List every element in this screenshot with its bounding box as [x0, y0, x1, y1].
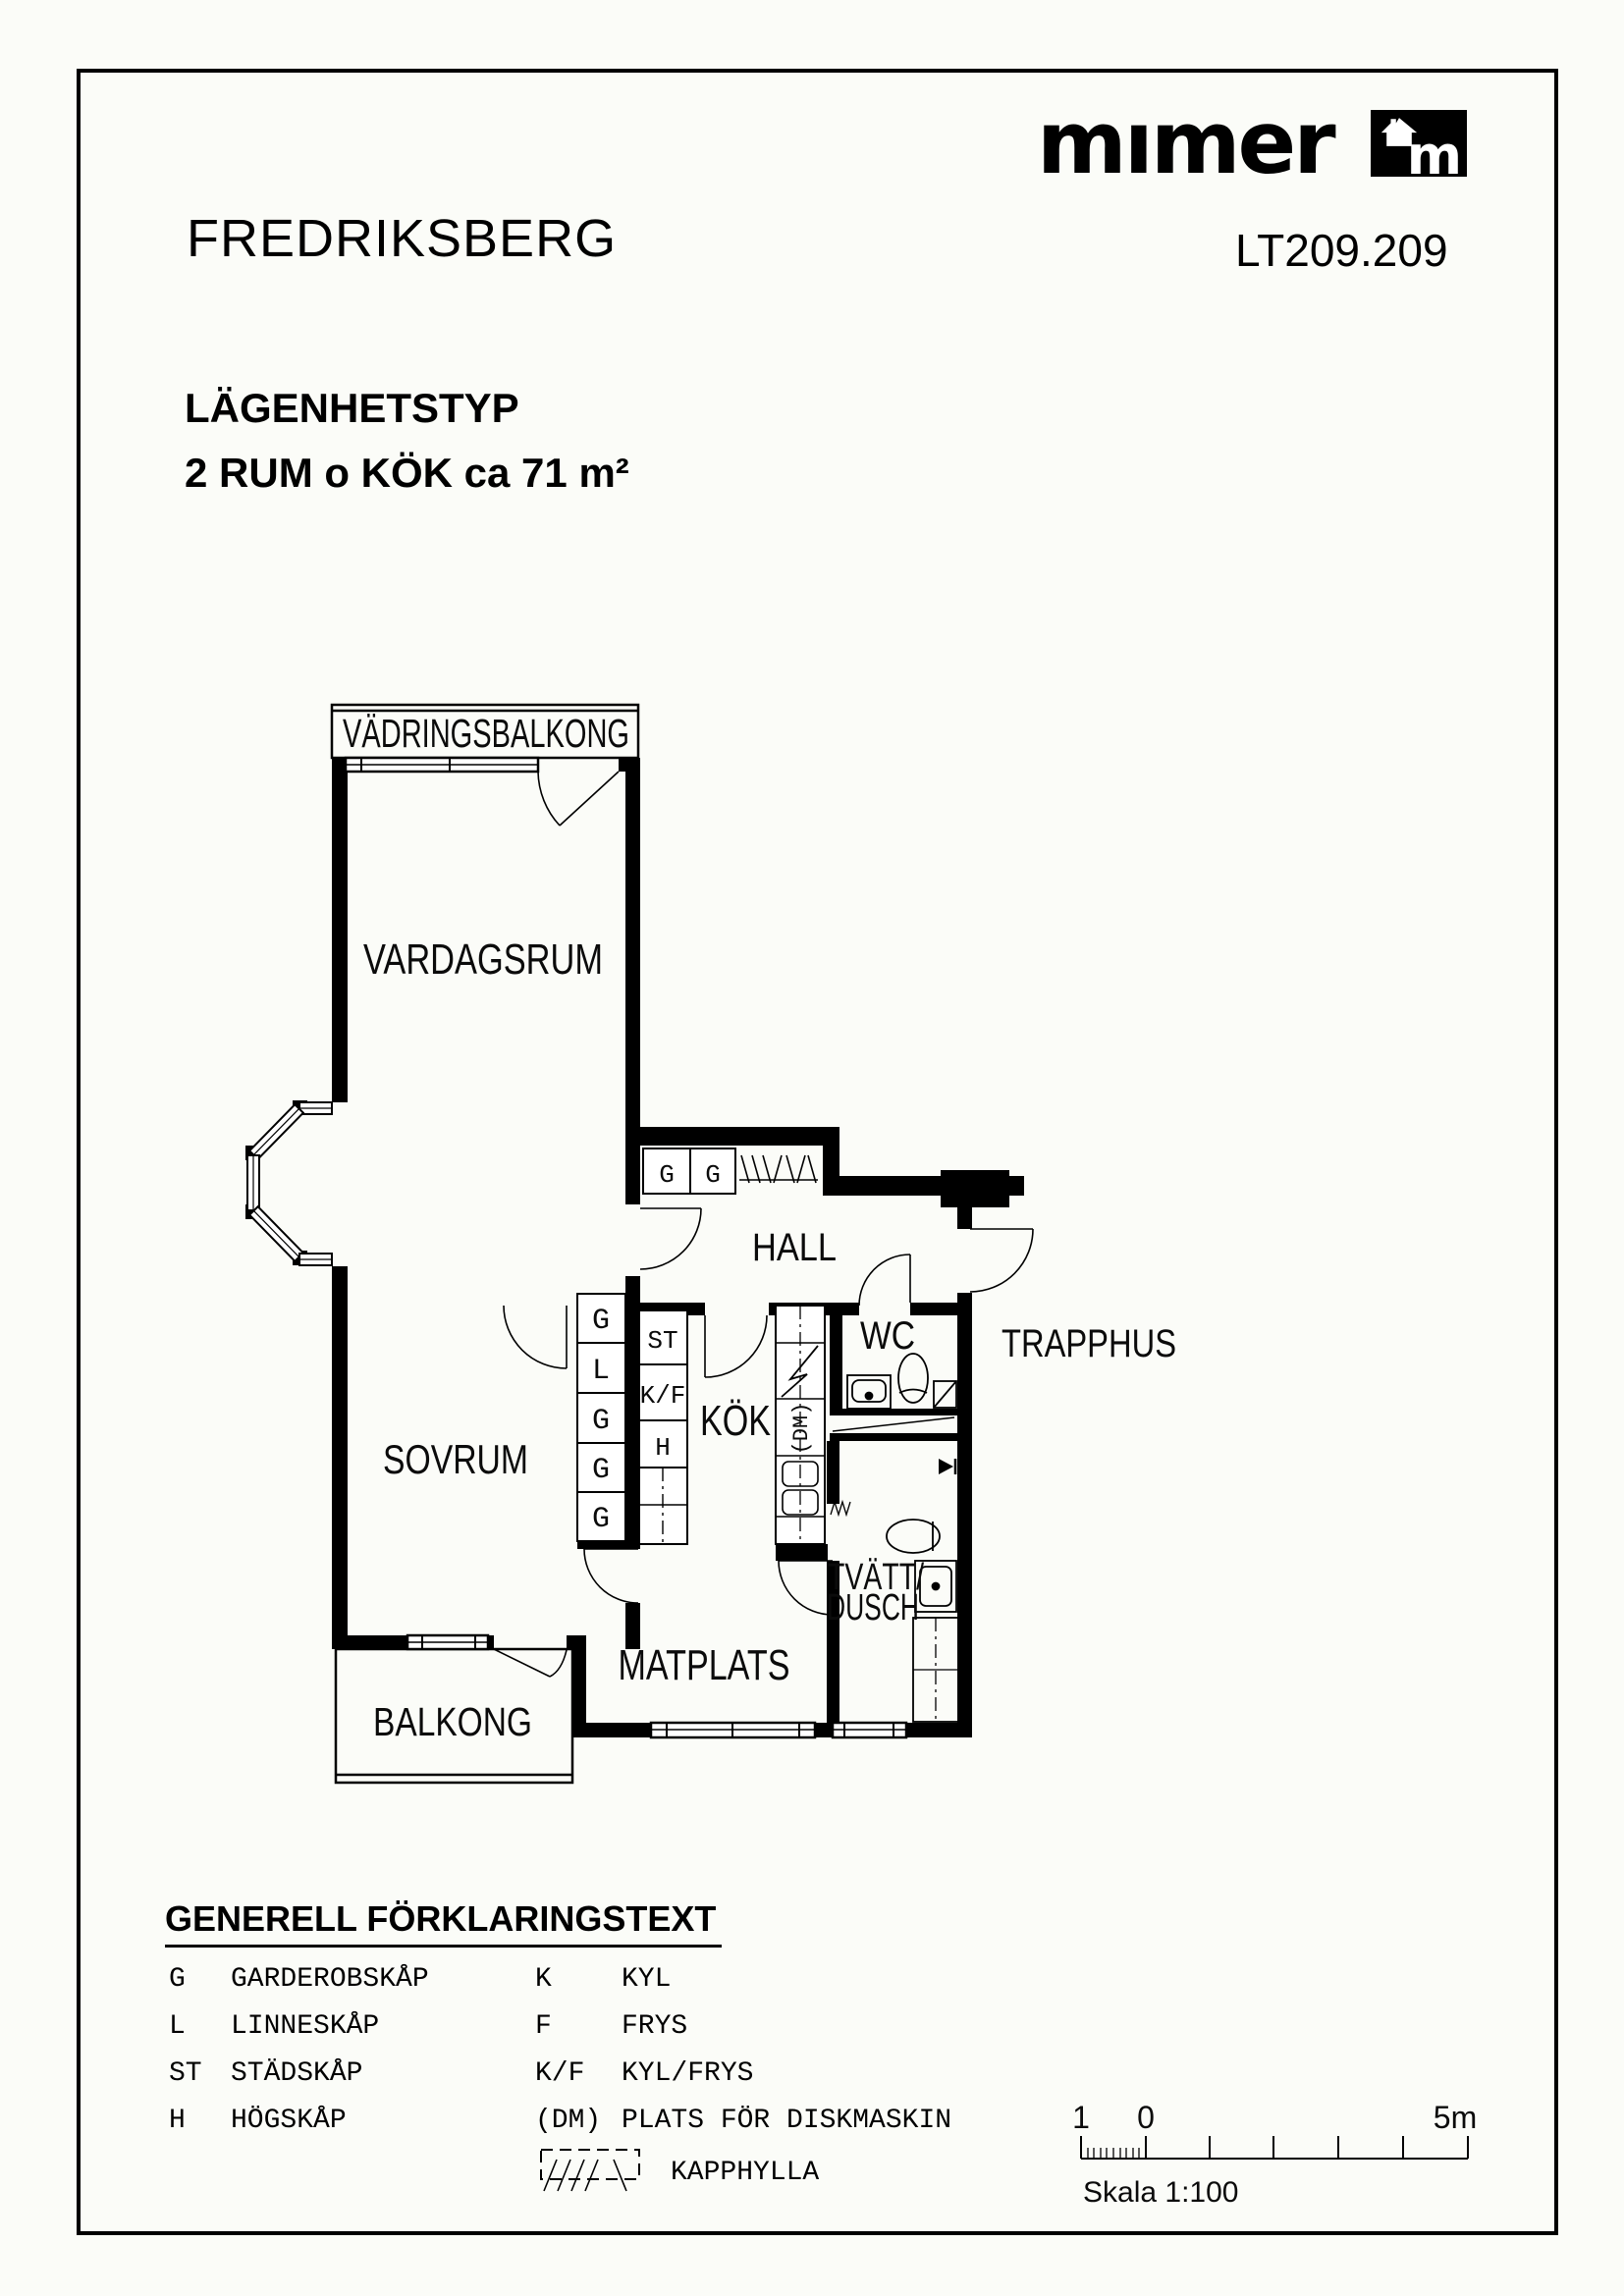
legend-label: FRYS [622, 2012, 687, 2042]
door-livingroom-bedroom [504, 1306, 567, 1368]
scale-caption: Skala 1:100 [1083, 2176, 1238, 2209]
doors [494, 772, 1033, 1677]
door-entrance [970, 1229, 1033, 1292]
floor-plan-drawing: VÄDRINGSBALKONG VARDAGSRUM HALL WC TRAPP… [0, 0, 1624, 2296]
room-label-wc: WC [860, 1314, 915, 1358]
bay-window-upper-diagonal [249, 1104, 303, 1159]
legend-abbr: ST [169, 2059, 231, 2089]
kapphylla-symbol [541, 2150, 639, 2191]
door-laundry [779, 1561, 833, 1615]
door-balcony-north [538, 772, 619, 826]
bay-window [247, 1102, 332, 1265]
room-label-livingroom: VARDAGSRUM [363, 935, 603, 984]
bay-window-top-strip [299, 1102, 332, 1114]
scale-bar-minor-ticks [1088, 2148, 1139, 2159]
cabinet-label-st: ST [647, 1326, 677, 1356]
bay-window-left-strip [247, 1155, 259, 1210]
legend-left-column: G GARDEROBSKÅP L LINNESKÅP ST STÄDSKÅP H… [169, 1965, 429, 2154]
room-label-stairwell: TRAPPHUS [1001, 1322, 1176, 1365]
cabinet-label-g: G [659, 1160, 675, 1190]
legend-right-column: K KYL F FRYS K/F KYL/FRYS (DM) PLATS FÖR… [535, 1965, 951, 2154]
floor-plan-page: FREDRIKSBERG LT209.209 LÄGENHETSTYP 2 RU… [0, 0, 1624, 2296]
room-label-bedroom: SOVRUM [383, 1436, 528, 1482]
room-label-laundry-line2: DUSCH [827, 1587, 919, 1629]
legend-abbr: L [169, 2012, 231, 2042]
room-labels: VÄDRINGSBALKONG VARDAGSRUM HALL WC TRAPP… [343, 711, 1176, 1744]
legend-label: KYL [622, 1965, 671, 1995]
direction-arrow-icon [939, 1459, 955, 1474]
room-label-hall: HALL [752, 1226, 837, 1269]
door-bedroom-dining [584, 1549, 638, 1603]
hall-coatshelf-symbol [739, 1155, 818, 1183]
window-diningarea-south-1 [651, 1723, 815, 1737]
towel-hooks-icon [831, 1502, 850, 1515]
scale-label-zero: 0 [1137, 2100, 1155, 2135]
scale-bar [1081, 2136, 1468, 2159]
legend-label: PLATS FÖR DISKMASKIN [622, 2107, 951, 2136]
toilet-icon [898, 1354, 928, 1403]
legend-abbr: (DM) [535, 2107, 622, 2136]
legend-row: L LINNESKÅP [169, 2012, 429, 2042]
wc-fixtures [847, 1354, 956, 1409]
door-bedroom-balcony [494, 1649, 567, 1677]
shower-drain-icon [934, 1381, 956, 1408]
room-label-airing-balcony: VÄDRINGSBALKONG [343, 711, 629, 756]
room-label-balcony: BALKONG [373, 1699, 532, 1744]
window-diningarea-south-2 [833, 1723, 906, 1737]
legend-label: KYL/FRYS [622, 2059, 753, 2089]
legend-abbr: K [535, 1965, 622, 1995]
scale-label-five: 5m [1434, 2100, 1477, 2135]
cabinet-label-g: G [705, 1160, 721, 1190]
legend-abbr: H [169, 2107, 231, 2136]
cabinet-label-g: G [592, 1454, 610, 1487]
cabinet-label-dm: (DM) [789, 1403, 814, 1455]
legend-label: LINNESKÅP [231, 2012, 379, 2042]
door-livingroom-hall [640, 1208, 701, 1269]
legend-row: H HÖGSKÅP [169, 2107, 429, 2136]
legend-title: GENERELL FÖRKLARINGSTEXT [165, 1898, 722, 1948]
legend-kapphylla-label: KAPPHYLLA [671, 2158, 819, 2188]
bay-window-lower-diagonal [249, 1206, 303, 1261]
legend-abbr: F [535, 2012, 622, 2042]
scale-label-one: 1 [1072, 2100, 1090, 2135]
toilet-icon [887, 1520, 940, 1553]
legend-label: HÖGSKÅP [231, 2107, 347, 2136]
legend-row: ST STÄDSKÅP [169, 2059, 429, 2089]
cabinet-label-g: G [592, 1405, 610, 1438]
bay-window-bottom-strip [299, 1254, 332, 1265]
door-hall-wc [859, 1255, 910, 1306]
cabinet-label-h: H [655, 1433, 671, 1463]
legend-label: STÄDSKÅP [231, 2059, 362, 2089]
legend-row: G GARDEROBSKÅP [169, 1965, 429, 1995]
legend-row: (DM) PLATS FÖR DISKMASKIN [535, 2107, 951, 2136]
cabinet-label-g: G [592, 1305, 610, 1338]
legend-row: K KYL [535, 1965, 951, 1995]
legend-row: K/F KYL/FRYS [535, 2059, 951, 2089]
legend-abbr: G [169, 1965, 231, 1995]
door-hall-kitchen [705, 1315, 767, 1377]
window-bedroom-south [407, 1635, 488, 1649]
room-label-dining: MATPLATS [619, 1641, 790, 1689]
washbasin-icon [847, 1375, 891, 1409]
laundry-bench-icon [913, 1618, 958, 1722]
cabinet-label-kf: K/F [640, 1381, 686, 1411]
cabinet-label-l: L [592, 1355, 610, 1388]
room-label-kitchen: KÖK [700, 1397, 771, 1445]
cabinet-label-g: G [592, 1503, 610, 1536]
legend-abbr: K/F [535, 2059, 622, 2089]
window-livingroom-north [346, 758, 538, 772]
legend-label: GARDEROBSKÅP [231, 1965, 429, 1995]
shaft-diagonal [833, 1417, 954, 1431]
legend-row: F FRYS [535, 2012, 951, 2042]
